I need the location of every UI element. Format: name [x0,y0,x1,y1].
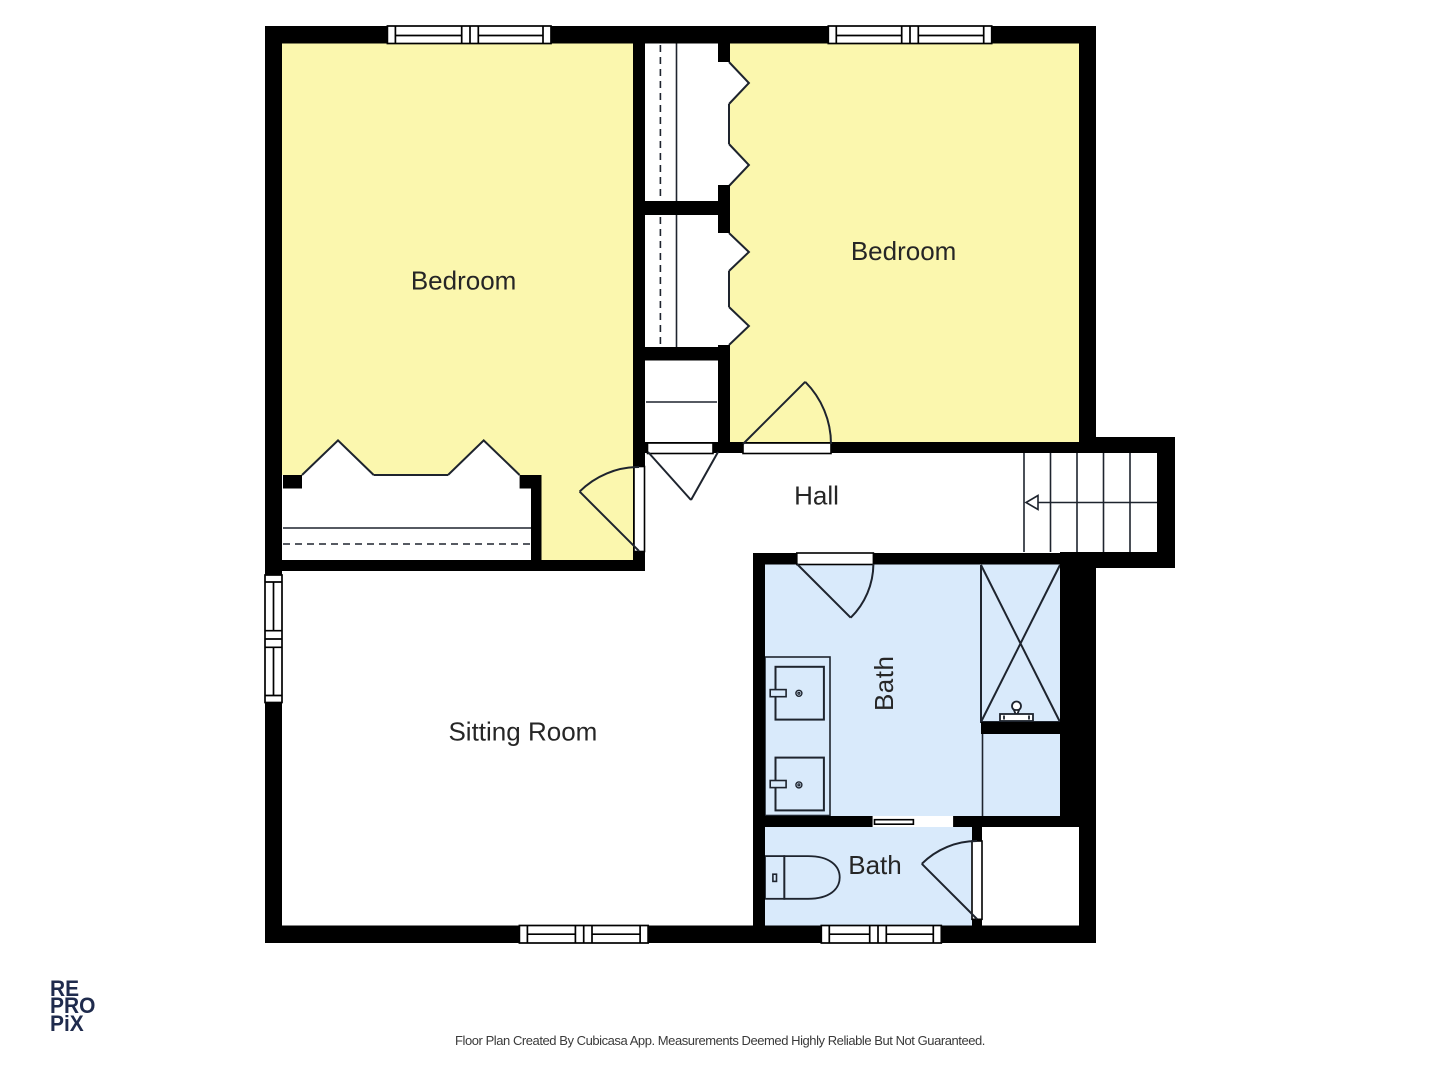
svg-text:Hall: Hall [794,481,839,511]
svg-text:Bath: Bath [848,850,902,880]
svg-text:Bath: Bath [869,656,899,712]
svg-text:Bedroom: Bedroom [851,236,957,266]
svg-text:Bedroom: Bedroom [411,266,517,296]
svg-text:Sitting Room: Sitting Room [448,717,597,747]
